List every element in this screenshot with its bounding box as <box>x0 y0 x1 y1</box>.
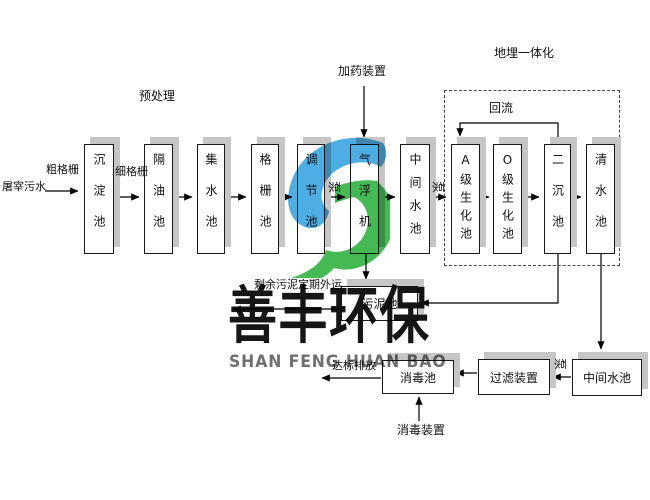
discharge-label: 达标排放 <box>332 360 376 373</box>
reflux-label: 回流 <box>489 102 513 116</box>
excess-sludge-label: 剩余污泥定期外运 <box>254 279 342 292</box>
pump-label-2: 泵 <box>431 180 445 194</box>
tank-intermediate-2: 中间水池 <box>572 359 642 396</box>
fine-screen-label: 细格栅 <box>115 166 148 179</box>
tank-secondary-sedimentation: 二沉池 <box>544 144 571 254</box>
tank-oil-separation: 隔油池 <box>144 144 173 254</box>
pump-label-1: 泵 <box>327 180 341 194</box>
disinfection-device-label: 消毒装置 <box>397 424 445 438</box>
dosing-device-label: 加药装置 <box>338 65 386 79</box>
tank-disinfection: 消毒池 <box>382 360 454 394</box>
tank-clear-water: 清水池 <box>586 144 615 254</box>
tank-sludge: 污泥池 <box>341 286 418 321</box>
tank-collection: 集水池 <box>197 144 225 254</box>
influent-label: 屠宰污水 <box>2 181 46 194</box>
air-flotation-machine: 气浮机 <box>350 144 379 254</box>
tank-regulating: 调节池 <box>297 144 325 254</box>
pretreatment-label: 预处理 <box>139 90 175 104</box>
tank-sedimentation: 沉淀池 <box>84 144 114 254</box>
tank-screen: 格栅池 <box>251 144 279 254</box>
coarse-screen-label: 粗格栅 <box>46 164 79 177</box>
underground-integration-label: 地埋一体化 <box>494 47 554 61</box>
wastewater-flow-diagram: 沉淀池 隔油池 集水池 格栅池 调节池 气浮机 中间水池 A级生化池 O级生化池… <box>0 0 650 500</box>
tank-o-biochemical: O级生化池 <box>493 144 522 254</box>
tank-a-biochemical: A级生化池 <box>451 144 480 254</box>
tank-intermediate-1: 中间水池 <box>400 144 430 254</box>
pump-label-3: 泵 <box>553 357 567 371</box>
filter-device: 过滤装置 <box>478 359 550 395</box>
